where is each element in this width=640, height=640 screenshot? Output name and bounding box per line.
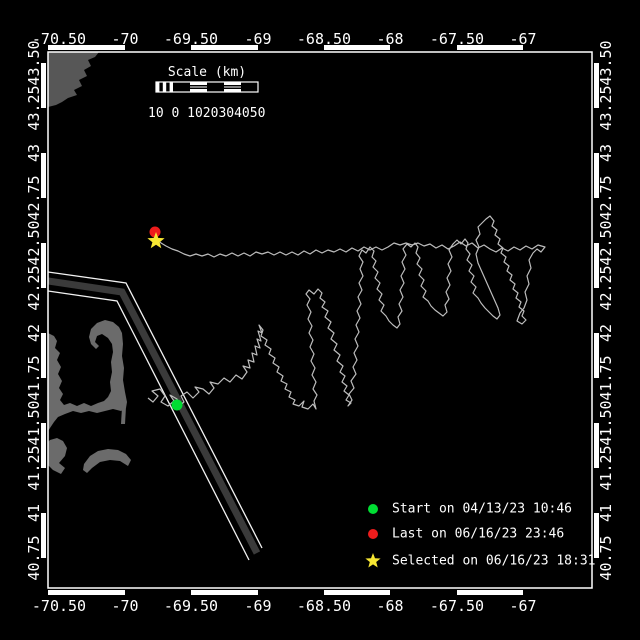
lat-label-right: 41.25 bbox=[597, 445, 615, 490]
lat-label-right: 43.50 bbox=[597, 40, 615, 85]
lon-label-top: -69.50 bbox=[164, 30, 218, 48]
lon-label-bottom: -67 bbox=[509, 597, 536, 615]
lat-label-left: 40.75 bbox=[25, 535, 43, 580]
border-zebra-bottom-segment bbox=[48, 590, 125, 595]
legend-start-icon bbox=[368, 504, 378, 514]
lat-label-right: 43.25 bbox=[597, 85, 615, 130]
lat-label-right: 43 bbox=[597, 144, 615, 162]
scale-bar-segment-stripe bbox=[190, 85, 207, 87]
lon-label-top: -67 bbox=[509, 30, 536, 48]
lon-label-bottom: -70.50 bbox=[32, 597, 86, 615]
glider-track-map-window: -70.50-70.50-70-70-69.50-69.50-69-69-68.… bbox=[0, 0, 640, 640]
scale-bar-hatch-cell bbox=[170, 82, 173, 92]
lon-label-top: -69 bbox=[244, 30, 271, 48]
lon-label-bottom: -69.50 bbox=[164, 597, 218, 615]
lon-label-bottom: -68 bbox=[376, 597, 403, 615]
lat-label-left: 42 bbox=[25, 324, 43, 342]
lon-label-bottom: -69 bbox=[244, 597, 271, 615]
lon-label-top: -70 bbox=[111, 30, 138, 48]
scale-bar-numbers: 10 0 1020304050 bbox=[148, 106, 265, 121]
scale-bar-segment-stripe bbox=[224, 85, 241, 87]
lat-label-right: 42 bbox=[597, 324, 615, 342]
lon-label-top: -67.50 bbox=[430, 30, 484, 48]
border-zebra-bottom-segment bbox=[457, 590, 523, 595]
lat-label-left: 43 bbox=[25, 144, 43, 162]
lat-label-left: 41.75 bbox=[25, 355, 43, 400]
lat-label-left: 41 bbox=[25, 504, 43, 522]
lat-label-right: 41.75 bbox=[597, 355, 615, 400]
scale-bar-segment-stripe bbox=[224, 88, 241, 90]
scale-bar-filled-segment bbox=[224, 82, 241, 92]
legend-last-icon bbox=[368, 529, 378, 539]
scale-bar-hatch-cell bbox=[163, 82, 166, 92]
lat-label-right: 42.75 bbox=[597, 175, 615, 220]
lat-label-right: 41 bbox=[597, 504, 615, 522]
legend-start-label: Start on 04/13/23 10:46 bbox=[392, 502, 572, 517]
scale-bar-segment-stripe bbox=[190, 88, 207, 90]
lat-label-right: 41.50 bbox=[597, 400, 615, 445]
start-marker bbox=[172, 400, 183, 411]
map-canvas: -70.50-70.50-70-70-69.50-69.50-69-69-68.… bbox=[0, 0, 640, 640]
lat-label-left: 42.25 bbox=[25, 265, 43, 310]
border-zebra-bottom-segment bbox=[191, 590, 258, 595]
lat-label-right: 40.75 bbox=[597, 535, 615, 580]
lat-label-right: 42.25 bbox=[597, 265, 615, 310]
scale-bar-filled-segment bbox=[190, 82, 207, 92]
lon-label-top: -68.50 bbox=[297, 30, 351, 48]
lat-label-left: 42.50 bbox=[25, 220, 43, 265]
lon-label-bottom: -70 bbox=[111, 597, 138, 615]
border-zebra-bottom-segment bbox=[324, 590, 390, 595]
lat-label-right: 42.50 bbox=[597, 220, 615, 265]
legend-last-label: Last on 06/16/23 23:46 bbox=[392, 527, 564, 542]
lat-label-left: 41.25 bbox=[25, 445, 43, 490]
scale-bar-title: Scale (km) bbox=[168, 65, 246, 80]
lat-label-left: 43.25 bbox=[25, 85, 43, 130]
map-background bbox=[0, 0, 640, 640]
scale-bar-hatch-cell bbox=[156, 82, 159, 92]
legend: Start on 04/13/23 10:46Last on 06/16/23 … bbox=[365, 502, 595, 569]
lon-label-top: -68 bbox=[376, 30, 403, 48]
lat-label-left: 41.50 bbox=[25, 400, 43, 445]
lat-label-left: 43.50 bbox=[25, 40, 43, 85]
lon-label-bottom: -67.50 bbox=[430, 597, 484, 615]
legend-selected-label: Selected on 06/16/23 18:31 bbox=[392, 554, 596, 569]
lat-label-left: 42.75 bbox=[25, 175, 43, 220]
lon-label-bottom: -68.50 bbox=[297, 597, 351, 615]
